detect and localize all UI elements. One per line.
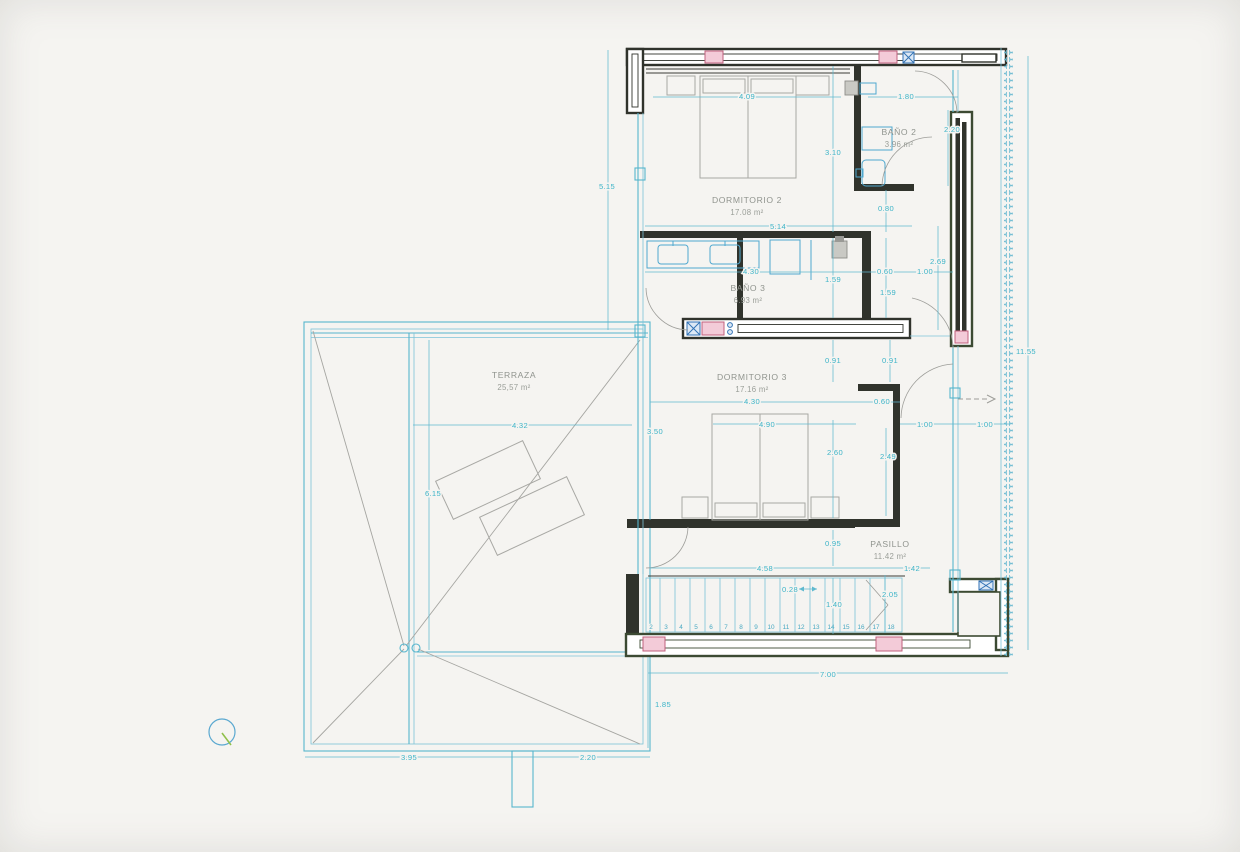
svg-text:1.00: 1.00: [917, 267, 933, 276]
svg-text:1.59: 1.59: [825, 275, 841, 284]
column: [702, 322, 724, 335]
room-area-dormitorio3: 17.16 m²: [735, 385, 768, 394]
svg-text:4.32: 4.32: [512, 421, 528, 430]
svg-text:3.10: 3.10: [825, 148, 841, 157]
room-area-bano2: 3.96 m²: [885, 140, 914, 149]
svg-text:2.20: 2.20: [944, 125, 960, 134]
room-area-terraza: 25,57 m²: [497, 383, 530, 392]
terraza-structure: [304, 322, 650, 807]
room-label-pasillo: PASILLO: [870, 539, 909, 549]
svg-text:7.00: 7.00: [820, 670, 836, 679]
svg-text:15: 15: [842, 624, 850, 631]
roof-post: [412, 644, 420, 652]
svg-text:1.40: 1.40: [826, 600, 842, 609]
svg-text:3.50: 3.50: [647, 427, 663, 436]
svg-text:13: 13: [812, 624, 820, 631]
svg-text:1.00: 1.00: [977, 420, 993, 429]
direction-arrow: [958, 395, 995, 403]
blue-marker: [979, 581, 993, 590]
svg-text:9: 9: [754, 624, 758, 631]
svg-text:1.42: 1.42: [904, 564, 920, 573]
room-label-bano2: BAÑO 2: [881, 127, 916, 137]
tread-dim-arrow: [799, 587, 817, 592]
svg-text:1.00: 1.00: [917, 420, 933, 429]
floor-plan-page: 2 3 4 5 6 7 8 9 10 11 12 13 14 15 16 17 …: [0, 0, 1240, 852]
svg-text:10: 10: [767, 624, 775, 631]
room-labels: DORMITORIO 2 17.08 m² BAÑO 2 3.96 m² BAÑ…: [492, 127, 917, 561]
staircase: 2 3 4 5 6 7 8 9 10 11 12 13 14 15 16 17 …: [646, 576, 905, 632]
svg-text:4: 4: [679, 624, 683, 631]
stair-step-numbers: 2 3 4 5 6 7 8 9 10 11 12 13 14 15 16 17 …: [649, 624, 895, 631]
svg-text:0.60: 0.60: [877, 267, 893, 276]
svg-text:5.15: 5.15: [599, 182, 615, 191]
column: [955, 331, 968, 343]
room-area-bano3: 6.93 m²: [734, 296, 763, 305]
svg-text:2: 2: [649, 624, 653, 631]
svg-text:4.30: 4.30: [744, 397, 760, 406]
room-label-terraza: TERRAZA: [492, 370, 536, 380]
room-label-bano3: BAÑO 3: [730, 283, 765, 293]
sun-lounger: [480, 477, 585, 556]
svg-text:4.58: 4.58: [757, 564, 773, 573]
shower-bano3: [770, 240, 800, 274]
dimension-labels: 4.09 1.80 3.10 2.20 5.14 0.80 5.15 4.30 …: [401, 92, 1036, 762]
svg-text:0.60: 0.60: [874, 397, 890, 406]
chimney-post: [512, 751, 533, 807]
svg-text:0.80: 0.80: [878, 204, 894, 213]
svg-text:0.95: 0.95: [825, 539, 841, 548]
room-area-pasillo: 11.42 m²: [874, 552, 907, 561]
svg-text:4.30: 4.30: [743, 267, 759, 276]
walls: [626, 49, 1008, 656]
roof-hip-lines: [313, 331, 640, 744]
svg-text:1.85: 1.85: [655, 700, 671, 709]
svg-text:6.15: 6.15: [425, 489, 441, 498]
insulation-hatch: [1004, 48, 1013, 656]
svg-text:18: 18: [887, 624, 895, 631]
north-indicator: [209, 719, 235, 745]
closet-bar: [683, 319, 910, 338]
svg-text:11: 11: [783, 624, 790, 631]
svg-text:12: 12: [797, 624, 805, 631]
svg-text:5.14: 5.14: [770, 222, 786, 231]
svg-text:11.55: 11.55: [1016, 347, 1036, 356]
svg-text:16: 16: [857, 624, 865, 631]
svg-text:6: 6: [709, 624, 713, 631]
svg-text:4.90: 4.90: [759, 420, 775, 429]
room-label-dormitorio3: DORMITORIO 3: [717, 372, 787, 382]
svg-text:8: 8: [739, 624, 743, 631]
toilet-bano3: [832, 236, 847, 258]
blue-marker: [687, 322, 700, 335]
svg-text:0.91: 0.91: [882, 356, 898, 365]
svg-text:1.80: 1.80: [898, 92, 914, 101]
room-label-dormitorio2: DORMITORIO 2: [712, 195, 782, 205]
svg-text:2.60: 2.60: [827, 448, 843, 457]
svg-text:14: 14: [827, 624, 835, 631]
svg-text:5: 5: [694, 624, 698, 631]
svg-text:3: 3: [664, 624, 668, 631]
svg-text:2.49: 2.49: [880, 452, 896, 461]
svg-text:4.09: 4.09: [739, 92, 755, 101]
svg-text:17: 17: [872, 624, 880, 631]
svg-text:2.05: 2.05: [882, 590, 898, 599]
vent: [962, 54, 996, 62]
column: [876, 637, 902, 651]
svg-text:0.28: 0.28: [782, 585, 798, 594]
sliding-window: [951, 112, 972, 346]
bed-dormitorio3: [682, 414, 839, 520]
svg-text:2.69: 2.69: [930, 257, 946, 266]
column: [643, 637, 665, 651]
column: [879, 51, 897, 63]
column: [705, 51, 723, 63]
svg-text:7: 7: [724, 624, 728, 631]
svg-text:2.20: 2.20: [580, 753, 596, 762]
svg-text:0.91: 0.91: [825, 356, 841, 365]
svg-text:1.59: 1.59: [880, 288, 896, 297]
floor-plan-drawing: 2 3 4 5 6 7 8 9 10 11 12 13 14 15 16 17 …: [0, 0, 1240, 852]
blue-marker: [903, 52, 914, 63]
svg-text:3.95: 3.95: [401, 753, 417, 762]
toilet-bano2: [845, 81, 876, 95]
room-area-dormitorio2: 17.08 m²: [730, 208, 763, 217]
sun-lounger: [436, 441, 541, 520]
